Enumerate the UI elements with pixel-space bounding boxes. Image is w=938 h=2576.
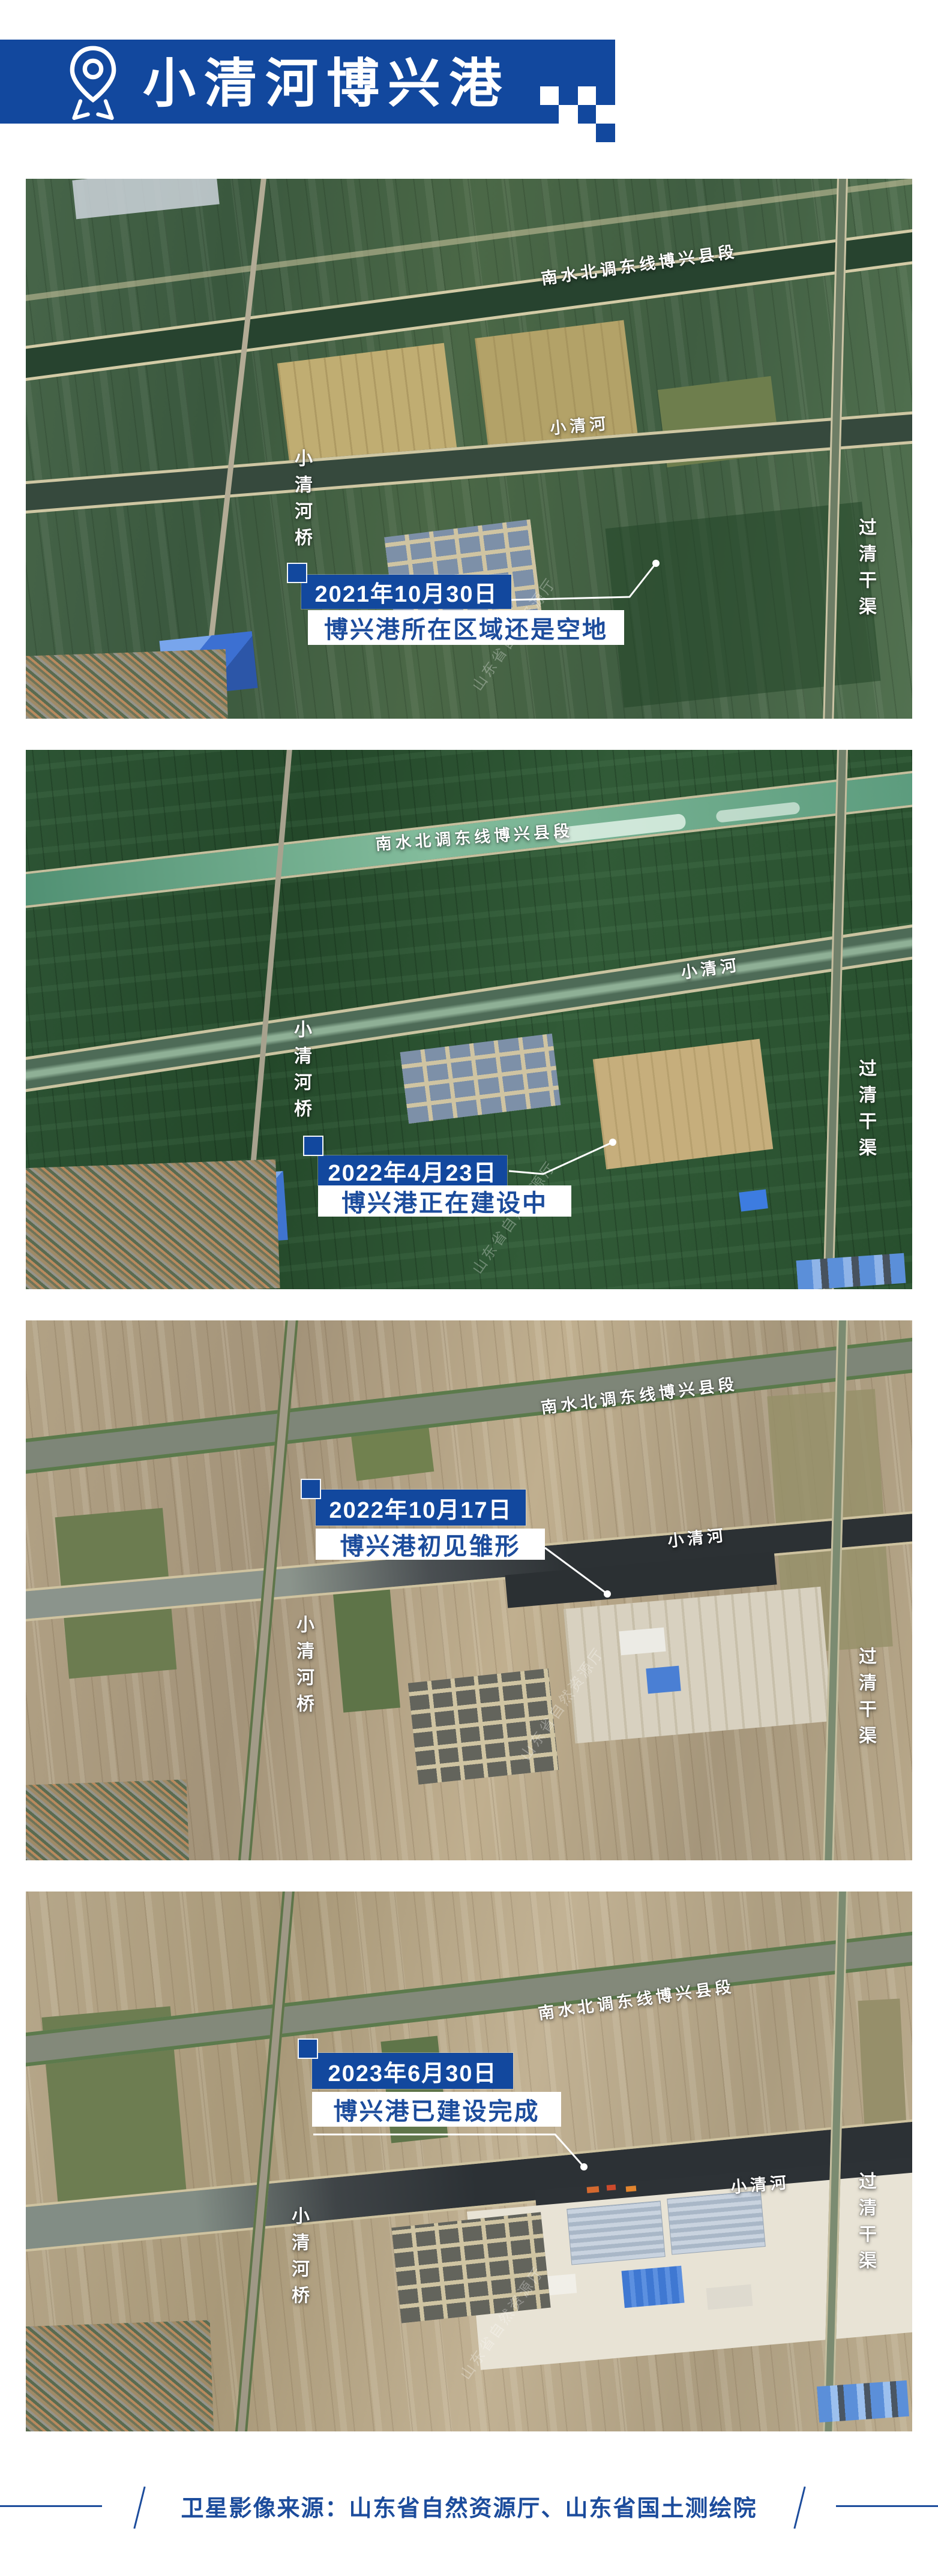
warehouse-roof [667,2190,766,2254]
white-shed [706,2284,753,2310]
satellite-image-2021-10-30: 山东省自然资源厅 南水北调东线博兴县段 小清河 小清河桥 过清干渠 2021年1… [26,179,912,719]
checker-square [578,86,596,105]
ship [607,2184,616,2190]
bridge-road [234,1892,296,2431]
factory-roof [72,179,219,219]
marker-square [287,563,307,583]
factory-strip [796,1253,906,1289]
aquaculture-ponds [400,1034,561,1124]
ship [626,2185,637,2191]
right-canal-label: 过清干渠 [852,1647,879,1752]
source-credit: 卫星影像来源：山东省自然资源厅、山东省国土测绘院 [0,2490,938,2523]
construction-site [593,1039,773,1170]
bridge-label: 小清河桥 [290,1615,316,1721]
location-pin-map-icon [60,44,126,120]
field-patch [380,2036,448,2143]
satellite-image-2022-04-23: 山东省自然资源厅 南水北调东线博兴县段 小清河 小清河桥 过清干渠 2022年4… [26,750,912,1289]
caption-box: 博兴港所在区域还是空地 [308,610,624,645]
river-band [26,409,912,515]
caption-box: 博兴港正在建设中 [318,1185,571,1217]
marker-square [298,2038,318,2059]
satellite-image-2022-10-17: 山东省自然资源厅 南水北调东线博兴县段 小清河 小清河桥 过清干渠 2022年1… [26,1320,912,1860]
satellite-image-2023-06-30: 山东省自然资源厅 南水北调东线博兴县段 小清河 小清河桥 过清干渠 2023年6… [26,1892,912,2431]
marker-square [303,1136,323,1156]
checker-square [559,105,578,124]
factory-strip [817,2380,909,2422]
bridge-label: 小清河桥 [285,2206,311,2312]
harbor-construction [564,1587,832,1744]
date-badge: 2022年10月17日 [316,1490,526,1526]
warehouse-roof [567,2200,666,2265]
right-canal-label: 过清干渠 [852,518,879,623]
forest-patch [605,502,880,707]
checker-square [540,86,559,105]
right-canal-label: 过清干渠 [852,2172,879,2277]
page-title: 小清河博兴港 [143,41,510,118]
village-area [26,649,228,719]
blue-roof-building [739,1189,768,1211]
blue-roof-building [646,1666,681,1694]
header-banner: 小清河博兴港 [0,40,615,124]
canal-band [26,1929,912,2068]
blue-roof-building [621,2266,684,2308]
caption-box: 博兴港初见雏形 [316,1529,545,1560]
village-area [26,1779,189,1860]
ship [587,2186,600,2193]
checker-square [596,105,615,124]
village-area [26,2320,214,2431]
drainage-canal [823,750,849,1289]
date-badge: 2023年6月30日 [312,2053,513,2089]
village-area [26,1160,280,1289]
caption-box: 博兴港已建设完成 [312,2092,561,2127]
bridge-label: 小清河桥 [288,449,314,554]
white-shed [619,1628,666,1655]
right-canal-label: 过清干渠 [852,1059,879,1164]
marker-square [301,1479,321,1499]
canal-band [26,226,912,382]
date-badge: 2022年4月23日 [318,1155,507,1185]
bridge-label: 小清河桥 [287,1020,314,1125]
infographic-page: 小清河博兴港 山东省自然资源厅 南水北调东线博兴县段 小清河 小清河桥 过清干渠 [0,0,938,2576]
checker-square [596,124,615,142]
date-badge: 2021年10月30日 [301,575,511,609]
field-patch [332,1582,400,1712]
